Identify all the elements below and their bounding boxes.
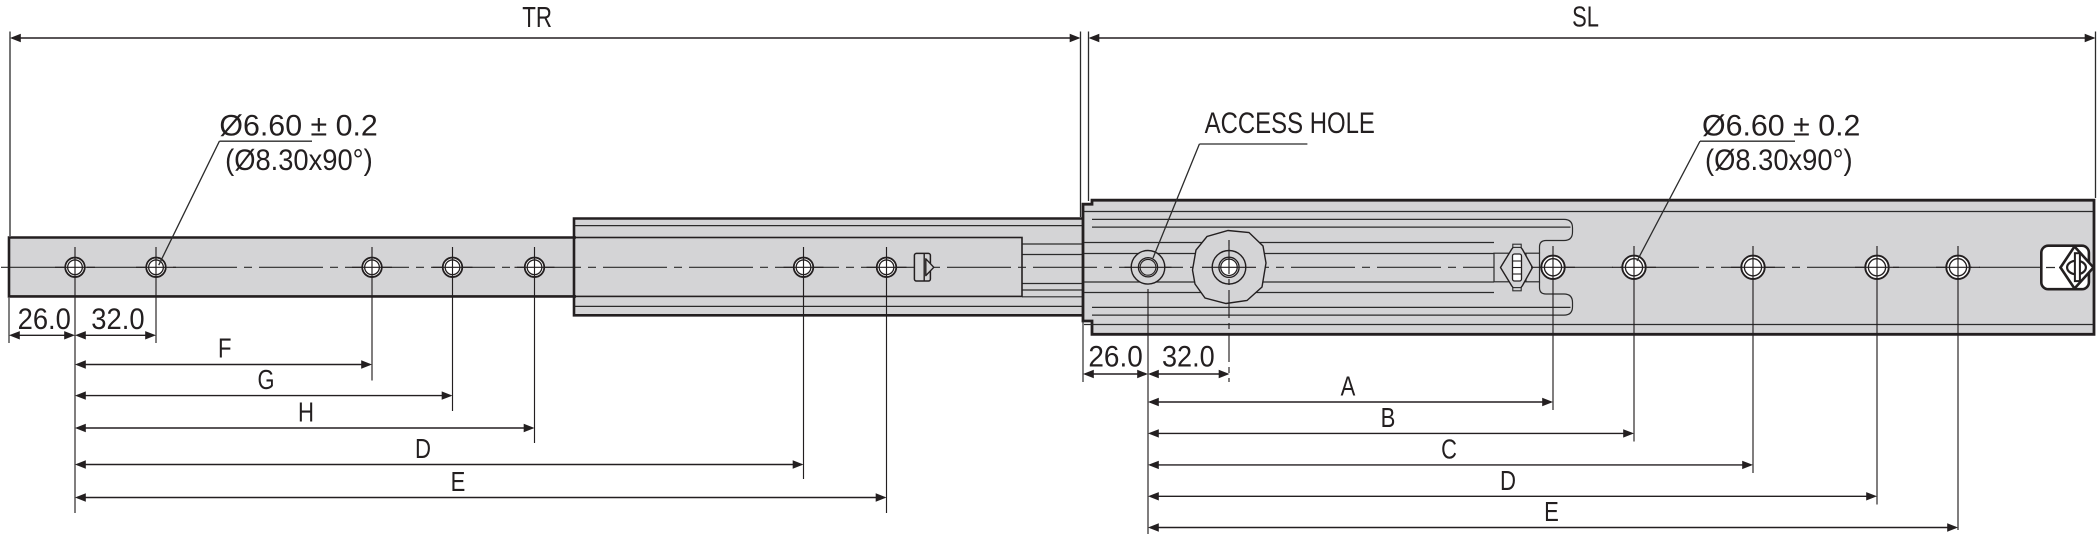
svg-text:D: D xyxy=(415,433,431,464)
svg-text:F: F xyxy=(218,333,232,364)
svg-text:B: B xyxy=(1381,402,1396,433)
svg-text:32.0: 32.0 xyxy=(1162,340,1215,373)
svg-text:(Ø8.30x90°): (Ø8.30x90°) xyxy=(1705,144,1853,177)
svg-text:E: E xyxy=(1544,496,1559,527)
svg-text:32.0: 32.0 xyxy=(91,303,144,336)
svg-text:D: D xyxy=(1500,465,1516,496)
svg-text:(Ø8.30x90°): (Ø8.30x90°) xyxy=(225,144,373,177)
svg-text:ACCESS HOLE: ACCESS HOLE xyxy=(1205,107,1375,140)
svg-text:A: A xyxy=(1341,371,1356,402)
svg-text:26.0: 26.0 xyxy=(1088,340,1142,373)
svg-text:26.0: 26.0 xyxy=(18,303,71,336)
svg-text:C: C xyxy=(1441,434,1457,465)
svg-text:H: H xyxy=(298,397,314,428)
svg-text:Ø6.60 ± 0.2: Ø6.60 ± 0.2 xyxy=(219,109,377,142)
svg-text:G: G xyxy=(258,364,275,395)
svg-text:Ø6.60 ± 0.2: Ø6.60 ± 0.2 xyxy=(1702,109,1860,142)
svg-text:SL: SL xyxy=(1572,2,1599,34)
svg-text:E: E xyxy=(451,466,466,497)
svg-text:TR: TR xyxy=(522,2,552,34)
